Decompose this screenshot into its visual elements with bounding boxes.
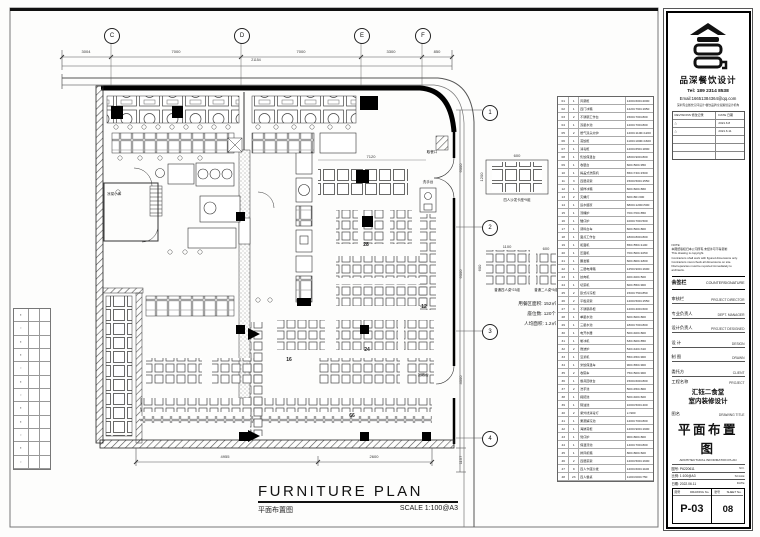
material-row: ▪ xyxy=(14,442,50,455)
signoff-label-cn: 制 图 xyxy=(672,354,682,360)
schedule-name: 三层电烤箱 xyxy=(579,265,626,272)
meta-row: 日期: 2022.06.11 DATE xyxy=(672,479,745,487)
schedule-no: 10 xyxy=(558,169,569,176)
schedule-name: 果蔬解冻池 xyxy=(579,417,626,424)
signoff-label-en: PROJECT DIRECTOR xyxy=(711,298,744,302)
schedule-row: 35 2 收碗车 750×500×900 xyxy=(558,369,653,377)
schedule-size: 750×500×900 xyxy=(626,369,653,376)
schedule-qty: 1 xyxy=(569,449,579,456)
meta-rows: 图号: P6220611 NO. 比例: 1:100@A3 SCALE 日期: … xyxy=(672,464,745,487)
schedule-no: 17 xyxy=(558,225,569,232)
schedule-qty: 1 xyxy=(569,433,579,440)
sheet-number-label-en: SHEET No. xyxy=(727,490,742,494)
revision-date xyxy=(716,152,743,159)
material-mark: ▪ xyxy=(14,376,29,388)
material-row: ▫ xyxy=(14,389,50,402)
revision-mark xyxy=(673,144,717,151)
material-cell xyxy=(40,442,50,454)
schedule-row: 21 1 醒发箱 600×800×1800 xyxy=(558,257,653,265)
material-cell xyxy=(29,376,40,388)
countersignature-cn: 会签栏 xyxy=(672,279,687,286)
material-cell xyxy=(40,349,50,361)
material-mark: ▫ xyxy=(14,429,29,441)
schedule-no: 02 xyxy=(558,105,569,112)
signoff-row: 审核栏 PROJECT DIRECTOR xyxy=(672,290,745,305)
revision-date: 2021.6.11 xyxy=(716,128,743,135)
schedule-qty: 2 xyxy=(569,297,579,304)
schedule-row: 28 1 单星水池 600×600×800 xyxy=(558,313,653,321)
schedule-no: 03 xyxy=(558,113,569,120)
dim-top-3: 7000 xyxy=(297,50,306,54)
seat-count-28: 28 xyxy=(363,243,369,248)
seating-stats: 用餐区面积: 152㎡ 座位数: 120个 人均面积: 1.2㎡ xyxy=(492,299,556,329)
schedule-name: 拖把池 xyxy=(579,393,626,400)
schedule-size: 1000×700×500 xyxy=(626,217,653,224)
schedule-no: 08 xyxy=(558,153,569,160)
schedule-size: 800×800×600 xyxy=(626,449,653,456)
schedule-no: 38 xyxy=(558,393,569,400)
furniture-plan-title: FURNITURE PLAN xyxy=(258,483,458,503)
schedule-no: 05 xyxy=(558,129,569,136)
schedule-no: 16 xyxy=(558,217,569,224)
revision-mark xyxy=(673,136,717,143)
schedule-size: 1200×600×1100 xyxy=(626,465,653,472)
schedule-qty: 2 xyxy=(569,409,579,416)
schedule-name: 海鲜蒸柜 xyxy=(579,425,626,432)
schedule-no: 41 xyxy=(558,417,569,424)
schedule-name: 隔油池 xyxy=(579,401,626,408)
schedule-row: 47 9 四人卡座沙发 1200×600×1100 xyxy=(558,465,653,473)
schedule-size: 1200×900×1900 xyxy=(626,425,653,432)
schedule-qty: 1 xyxy=(569,185,579,192)
schedule-no: 23 xyxy=(558,273,569,280)
project-name-line2: 室内装修设计 xyxy=(672,397,745,407)
schedule-qty: 1 xyxy=(569,249,579,256)
schedule-name: 制冰机 xyxy=(579,337,626,344)
schedule-no: 43 xyxy=(558,433,569,440)
schedule-size: 600×600×860 xyxy=(626,185,653,192)
schedule-name: 收银台 xyxy=(579,161,626,168)
schedule-row: 41 1 果蔬解冻池 1200×700×800 xyxy=(558,417,653,425)
schedule-name: 煲仔炉 xyxy=(579,433,626,440)
revision-row xyxy=(673,152,744,159)
schedule-qty: 1 xyxy=(569,169,579,176)
drawing-title-bar: FURNITURE PLAN 平面布置图 SCALE 1:100@A3 xyxy=(258,483,458,515)
note-line: Discrepancies must be reported immediate… xyxy=(672,264,745,272)
schedule-qty: 1 xyxy=(569,329,579,336)
revision-row: △ 2021.6.11 xyxy=(673,128,744,136)
material-row: ▫ xyxy=(14,456,50,469)
meta-row: 比例: 1:100@A3 SCALE xyxy=(672,472,745,480)
revision-mark: △ xyxy=(673,120,717,127)
schedule-row: 20 1 压面机 700×500×1050 xyxy=(558,249,653,257)
schedule-row: 33 1 豆浆机 550×450×900 xyxy=(558,353,653,361)
schedule-no: 07 xyxy=(558,145,569,152)
stat-per-capita: 人均面积: 1.2㎡ xyxy=(492,319,556,329)
schedule-row: 25 2 卧式冷冻柜 1500×750×850 xyxy=(558,289,653,297)
schedule-row: 23 1 绞肉机 400×400×500 xyxy=(558,273,653,281)
schedule-name: 不锈钢工作台 xyxy=(579,113,626,120)
meta-label: NO. xyxy=(739,466,744,470)
dim-bottom-2: 2600 xyxy=(370,455,379,459)
schedule-size: 1800×700×800 xyxy=(626,321,653,328)
schedule-no: 13 xyxy=(558,193,569,200)
schedule-qty: 9 xyxy=(569,465,579,472)
schedule-size: 630×600×850 xyxy=(626,337,653,344)
material-cell xyxy=(40,402,50,414)
schedule-size: 550×450×900 xyxy=(626,353,653,360)
material-row: ▫ xyxy=(14,322,50,335)
schedule-name: 微波炉 xyxy=(579,345,626,352)
brand-tel: Tel: 189 2314 8538 xyxy=(672,89,745,94)
material-cell xyxy=(40,456,50,468)
drawing-label-en: DRAWING TITLE xyxy=(719,413,745,417)
schedule-row: 29 1 三星水池 1800×700×800 xyxy=(558,321,653,329)
material-cell xyxy=(40,362,50,374)
schedule-name: 不锈钢吊柜 xyxy=(579,305,626,312)
meta-label: DATE xyxy=(737,481,745,485)
schedule-row: 22 1 三层电烤箱 1250×900×1600 xyxy=(558,265,653,273)
brand-tagline: 深圳专业餐饮空间设计/餐饮品牌全案策划设计机构 xyxy=(672,103,745,107)
grid-bubble-c: C xyxy=(104,28,120,44)
signoff-label-en: CLIENT xyxy=(733,371,745,375)
schedule-qty: 1 xyxy=(569,257,579,264)
schedule-qty: 1 xyxy=(569,145,579,152)
project-label-en: PROJECT xyxy=(729,381,744,385)
revisions-header: REVISIONS 修改记录 DATE 日期 xyxy=(673,112,744,120)
schedule-no: 39 xyxy=(558,401,569,408)
schedule-size: 500×400×800 xyxy=(626,329,653,336)
signoff-row: 设计负责人 PROJECT DESIGNED xyxy=(672,319,745,334)
schedule-name: 调料台车 xyxy=(579,225,626,232)
schedule-qty: 1 xyxy=(569,321,579,328)
material-cell xyxy=(40,416,50,428)
schedule-qty: 1 xyxy=(569,97,579,104)
signoff-row: 设 计 DESIGN xyxy=(672,333,745,348)
schedule-name: 四层菜架 xyxy=(579,457,626,464)
schedule-name: 留样冰箱 xyxy=(579,185,626,192)
equipment-schedule-table: 01 1 风幕柜 1200×600×2000 02 1 四门冰箱 1220×76… xyxy=(557,96,654,482)
schedule-name: 售饭保温台 xyxy=(579,153,626,160)
schedule-size: 900×800×800 xyxy=(626,433,653,440)
schedule-no: 09 xyxy=(558,161,569,168)
drawing-title-en: ARCHITECTURAL INFORMATION PLAN xyxy=(672,458,745,462)
schedule-row: 09 1 收银台 600×500×950 xyxy=(558,161,653,169)
brand-email: Email:16651384364@qq.com xyxy=(672,96,745,101)
schedule-no: 24 xyxy=(558,281,569,288)
schedule-qty: 1 xyxy=(569,281,579,288)
drawing-label-cn: 图名 xyxy=(672,411,680,417)
meta-value: 日期: 2022.06.11 xyxy=(672,481,697,486)
schedule-no: 29 xyxy=(558,321,569,328)
schedule-row: 34 1 米饭保温车 900×650×900 xyxy=(558,361,653,369)
schedule-qty: 1 xyxy=(569,233,579,240)
schedule-size: 6800×1200×500 xyxy=(626,201,653,208)
schedule-size: 600×500×800 xyxy=(626,225,653,232)
material-row: ▪ xyxy=(14,309,50,322)
schedule-size: 1100×1000×1600 xyxy=(626,137,653,144)
schedule-qty: 1 xyxy=(569,105,579,112)
revision-mark: △ xyxy=(673,128,717,135)
schedule-qty: 1 xyxy=(569,153,579,160)
drawing-title-cn: 平面布置图 xyxy=(672,419,745,457)
schedule-row: 01 1 风幕柜 1200×600×2000 xyxy=(558,97,653,105)
schedule-size: 1200×700×800 xyxy=(626,417,653,424)
schedule-size: 1500×600×800 xyxy=(626,377,653,384)
dim-top-1: 3004 xyxy=(82,50,91,54)
schedule-size: 1200×700×800 xyxy=(626,121,653,128)
schedule-qty: 1 xyxy=(569,161,579,168)
schedule-row: 43 1 煲仔炉 900×800×800 xyxy=(558,433,653,441)
schedule-qty: 1 xyxy=(569,401,579,408)
schedule-size: 1200×400×600 xyxy=(626,305,653,312)
schedule-size: 650×550×1100 xyxy=(626,241,653,248)
revisions-header-right: DATE 日期 xyxy=(716,112,743,119)
project-name: 汇钰二食堂 室内装修设计 xyxy=(672,388,745,408)
schedule-row: 05 2 燃气双头炒炉 1200×1100×1200 xyxy=(558,129,653,137)
mini-dim-600-left: 600 xyxy=(478,265,482,272)
schedule-no: 33 xyxy=(558,353,569,360)
schedule-size: 400×400×500 xyxy=(626,273,653,280)
grid-bubble-f: F xyxy=(415,28,431,44)
schedule-qty: 1 xyxy=(569,225,579,232)
schedule-name: 米饭保温车 xyxy=(579,361,626,368)
seat-count-24: 24 xyxy=(364,348,370,353)
schedule-size: 500×400×600 xyxy=(626,393,653,400)
drawing-number: P-03 xyxy=(673,496,712,523)
schedule-row: 44 1 保温汤池 1400×700×800 xyxy=(558,441,653,449)
material-mark: ▫ xyxy=(14,456,29,468)
schedule-no: 04 xyxy=(558,121,569,128)
room-label-cold-dish: 凉菜小库 xyxy=(107,193,121,197)
schedule-size: 700×700×850 xyxy=(626,209,653,216)
schedule-qty: 1 xyxy=(569,425,579,432)
schedule-name: 豆浆机 xyxy=(579,353,626,360)
title-block: 品深餐饮设计 Tel: 189 2314 8538 Email:16651384… xyxy=(663,8,753,531)
schedule-qty: 1 xyxy=(569,209,579,216)
dim-right-2: 6000 xyxy=(459,270,463,279)
signoff-label-cn: 设 计 xyxy=(672,340,682,346)
material-row: ▪ xyxy=(14,376,50,389)
material-mark: ▪ xyxy=(14,349,29,361)
revision-date xyxy=(716,136,743,143)
meta-value: 图号: P6220611 xyxy=(672,466,695,471)
schedule-name: 单星水池 xyxy=(579,313,626,320)
schedule-size: 1200×500×1550 xyxy=(626,297,653,304)
seat-count-16: 16 xyxy=(286,358,292,363)
schedule-no: 15 xyxy=(558,209,569,216)
schedule-row: 16 1 矮仔炉 1000×700×500 xyxy=(558,217,653,225)
mini-dim-600-2p: 600 xyxy=(543,247,550,251)
schedule-size: 1100×600×750 xyxy=(626,473,653,480)
schedule-row: 37 2 洗手池 500×450×800 xyxy=(558,385,653,393)
mini-dim-1100: 1100 xyxy=(503,245,512,249)
schedule-no: 11 xyxy=(558,177,569,184)
material-row: ▫ xyxy=(14,429,50,442)
schedule-row: 08 1 售饭保温台 1800×900×800 xyxy=(558,153,653,161)
material-mark: ▪ xyxy=(14,309,29,321)
schedule-no: 36 xyxy=(558,377,569,384)
schedule-row: 15 1 汤桶炉 700×700×850 xyxy=(558,209,653,217)
brand-logo xyxy=(672,22,745,70)
material-row: ▪ xyxy=(14,349,50,362)
caption-booth: 四人沙发卡座*9组 xyxy=(504,199,531,202)
schedule-size: 1200×500×1600 xyxy=(626,457,653,464)
schedule-row: 19 1 和面机 650×550×1100 xyxy=(558,241,653,249)
schedule-no: 30 xyxy=(558,329,569,336)
schedule-row: 38 1 拖把池 500×400×600 xyxy=(558,393,653,401)
schedule-no: 20 xyxy=(558,249,569,256)
schedule-qty: 1 xyxy=(569,377,579,384)
schedule-name: 保温汤池 xyxy=(579,441,626,448)
seat-count-12: 12 xyxy=(421,305,427,310)
signoff-label-cn: 设计负责人 xyxy=(672,325,693,331)
dim-interior: 7120 xyxy=(367,155,376,159)
schedule-name: 紫外线消毒灯 xyxy=(579,409,626,416)
schedule-no: 25 xyxy=(558,289,569,296)
signoff-label-cn: 委托方 xyxy=(672,369,685,375)
material-cell xyxy=(29,349,40,361)
material-cell xyxy=(29,389,40,401)
schedule-name: 和面机 xyxy=(579,241,626,248)
signoff-label-en: DRAWN xyxy=(732,356,744,360)
material-cell xyxy=(40,376,50,388)
schedule-row: 36 1 餐具回收台 1500×600×800 xyxy=(558,377,653,385)
schedule-size: 1200×1100×1200 xyxy=(626,129,653,136)
mini-dim-1200: 1200 xyxy=(480,173,484,182)
material-cell xyxy=(40,309,50,321)
schedule-qty: 2 xyxy=(569,113,579,120)
material-row: ▪ xyxy=(14,402,50,415)
schedule-name: 卧式冷冻柜 xyxy=(579,289,626,296)
schedule-size: 1200×650×1800 xyxy=(626,145,653,152)
sheet-number-box: 图号 DRAWING No. P-03 张号 SHEET No. 08 xyxy=(672,488,745,524)
material-row: ▪ xyxy=(14,336,50,349)
schedule-row: 48 23 四人餐桌 1100×600×750 xyxy=(558,473,653,481)
signoff-label-en: DEPT. MANAGER xyxy=(718,313,745,317)
schedule-name: 洗手池 xyxy=(579,385,626,392)
schedule-row: 04 1 双星水池 1200×700×800 xyxy=(558,121,653,129)
dim-top-4: 3300 xyxy=(387,50,396,54)
schedule-row: 30 1 电开水器 500×400×800 xyxy=(558,329,653,337)
schedule-size: 600×600×800 xyxy=(626,313,653,320)
schedule-name: 风幕柜 xyxy=(579,97,626,104)
schedule-row: 11 3 四层货架 1500×500×1550 xyxy=(558,177,653,185)
schedule-no: 42 xyxy=(558,425,569,432)
schedule-name: 四门冰箱 xyxy=(579,105,626,112)
schedule-size: 650×740×1500 xyxy=(626,169,653,176)
drawing-sheet: C D E F 1 2 3 4 3004 7000 7000 3300 850 … xyxy=(0,0,760,537)
project-label-cn: 工程名称 xyxy=(672,379,689,385)
schedule-row: 14 1 运水烟罩 6800×1200×500 xyxy=(558,201,653,209)
schedule-name: 餐具回收台 xyxy=(579,377,626,384)
schedule-no: 28 xyxy=(558,313,569,320)
schedule-no: 47 xyxy=(558,465,569,472)
schedule-qty: 1 xyxy=(569,265,579,272)
schedule-no: 18 xyxy=(558,233,569,240)
countersignature-en: COUNTERSIGNATURE xyxy=(706,281,744,285)
schedule-row: 24 1 切菜机 600×550×900 xyxy=(558,281,653,289)
schedule-size: 1800×900×800 xyxy=(626,153,653,160)
schedule-qty: 2 xyxy=(569,345,579,352)
signoff-label-cn: 专业负责人 xyxy=(672,311,693,317)
schedule-no: 06 xyxy=(558,137,569,144)
schedule-qty: 1 xyxy=(569,217,579,224)
schedule-row: 10 1 揭盖式洗碗机 650×740×1500 xyxy=(558,169,653,177)
material-mark: ▪ xyxy=(14,416,29,428)
schedule-size: 600×550×900 xyxy=(626,281,653,288)
stat-seat-count: 座位数: 120个 xyxy=(492,309,556,319)
dim-right-1: 6000 xyxy=(459,164,463,173)
schedule-qty: 1 xyxy=(569,337,579,344)
signoff-label-cn: 审核栏 xyxy=(672,296,685,302)
signoff-label-en: PROJECT DESIGNED xyxy=(711,327,744,331)
schedule-row: 42 1 海鲜蒸柜 1200×900×1900 xyxy=(558,425,653,433)
schedule-size: 1400×700×800 xyxy=(626,441,653,448)
schedule-row: 45 1 排风机箱 800×800×600 xyxy=(558,449,653,457)
material-cell xyxy=(40,322,50,334)
schedule-name: 矮仔炉 xyxy=(579,217,626,224)
mini-dim-600-top: 600 xyxy=(514,154,521,158)
schedule-size: 600×800×1800 xyxy=(626,257,653,264)
signoff-rows: 审核栏 PROJECT DIRECTOR 专业负责人 DEPT. MANAGER… xyxy=(672,290,745,377)
material-cell xyxy=(40,429,50,441)
schedule-no: 37 xyxy=(558,385,569,392)
signoff-row: 制 图 DRAWN xyxy=(672,348,745,363)
material-mark: ▫ xyxy=(14,362,29,374)
schedule-name: 蒸饭柜 xyxy=(579,137,626,144)
schedule-no: 21 xyxy=(558,257,569,264)
revision-row xyxy=(673,144,744,152)
schedule-no: 26 xyxy=(558,297,569,304)
schedule-name: 运水烟罩 xyxy=(579,201,626,208)
schedule-qty: 1 xyxy=(569,361,579,368)
schedule-qty: 2 xyxy=(569,457,579,464)
dim-top-total: 21154 xyxy=(251,59,260,63)
schedule-name: 燃气双头炒炉 xyxy=(579,129,626,136)
signoff-row: 专业负责人 DEPT. MANAGER xyxy=(672,304,745,319)
schedule-no: 44 xyxy=(558,441,569,448)
material-legend-table: ▪ ▫ ▪ ▪ ▫ xyxy=(13,308,51,470)
schedule-size: 1500×500×1550 xyxy=(626,177,653,184)
grid-bubble-4: 4 xyxy=(482,431,498,447)
material-row: ▫ xyxy=(14,362,50,375)
drawing-number-label-en: DRAWING No. xyxy=(690,490,709,494)
schedule-qty: 2 xyxy=(569,129,579,136)
material-cell xyxy=(29,456,40,468)
dim-right-3: 4000 xyxy=(459,376,463,385)
schedule-row: 26 2 平板货架 1200×500×1550 xyxy=(558,297,653,305)
countersignature-row: 会签栏 COUNTERSIGNATURE xyxy=(672,276,745,290)
dim-top-5: 850 xyxy=(434,50,441,54)
schedule-row: 27 4 不锈钢吊柜 1200×400×600 xyxy=(558,305,653,313)
schedule-name: 双星水池 xyxy=(579,121,626,128)
schedule-name: 平板货架 xyxy=(579,297,626,304)
material-mark: ▫ xyxy=(14,389,29,401)
schedule-no: 48 xyxy=(558,473,569,480)
schedule-no: 35 xyxy=(558,369,569,376)
brand-logo-icon xyxy=(688,22,728,70)
schedule-size: 1500×750×850 xyxy=(626,289,653,296)
schedule-size: 520×420×310 xyxy=(626,345,653,352)
revision-mark xyxy=(673,152,717,159)
room-label-wash: 洗手台 xyxy=(423,181,434,185)
meta-label: SCALE xyxy=(735,474,745,478)
schedule-no: 31 xyxy=(558,337,569,344)
grid-bubble-2: 2 xyxy=(482,220,498,236)
drawing-number-cell: 图号 DRAWING No. P-03 xyxy=(673,489,713,523)
schedule-row: 13 2 灭蝇灯 600×80×300 xyxy=(558,193,653,201)
